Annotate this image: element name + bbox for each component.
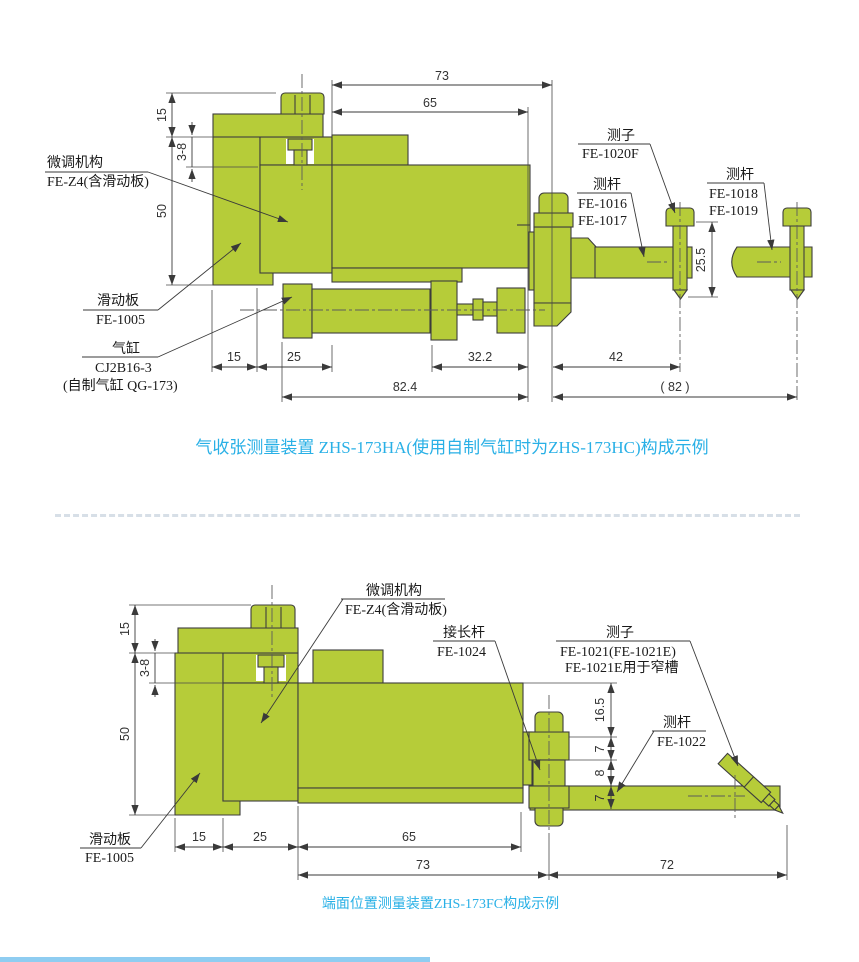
fine-adjust-block-part xyxy=(260,165,332,273)
dim-72: 72 xyxy=(660,858,674,872)
section-separator-dashed-line xyxy=(55,514,800,517)
body-step-part xyxy=(332,135,408,165)
cylinder-right-cap-part xyxy=(431,281,457,340)
body-step-part xyxy=(313,650,383,683)
main-body-part xyxy=(332,165,530,268)
label-rod-a-title: 测杆 xyxy=(593,177,621,193)
dim-82: ( 82 ) xyxy=(660,380,689,394)
dim-25-5: 25.5 xyxy=(694,248,708,272)
label-cylinder-part: CJ2B16-3 xyxy=(95,361,152,376)
label-stylus-title: 测子 xyxy=(607,128,635,144)
fine-adjust-block-part xyxy=(223,683,298,801)
diagram-air-gauge-zhs-173ha: 73 65 15 3-8 50 25.5 15 25 32.2 82.4 42 … xyxy=(45,69,812,402)
dim-73: 73 xyxy=(435,69,449,83)
bolt-nut-part xyxy=(258,655,284,667)
dim-25: 25 xyxy=(253,830,267,844)
elbow-part xyxy=(571,238,598,278)
label-fine-adjust-part: FE-Z4(含滑动板) xyxy=(345,601,447,618)
dim-73: 73 xyxy=(416,858,430,872)
dim-42: 42 xyxy=(609,350,623,364)
post-foot-part xyxy=(534,303,571,326)
body-strip-part xyxy=(332,268,462,282)
label-cylinder-title: 气缸 xyxy=(112,340,140,357)
bolt-shaft-part xyxy=(264,667,278,683)
label-fine-adjust-title: 微调机构 xyxy=(366,583,422,599)
dim-15-left: 15 xyxy=(155,108,169,122)
label-stylus-title: 测子 xyxy=(606,625,634,641)
label-rod-b-part2: FE-1019 xyxy=(709,204,758,219)
label-rod-b-part1: FE-1018 xyxy=(709,187,758,202)
stylus-tip-part xyxy=(674,290,687,299)
body-strip-part xyxy=(298,788,523,803)
label-rod-b-title: 测杆 xyxy=(726,167,754,183)
label-rod-a-part1: FE-1016 xyxy=(578,197,627,212)
label-rod-title: 测杆 xyxy=(663,715,691,731)
clamp-bolt-head-part xyxy=(281,93,324,114)
label-cylinder-note: (自制气缸 QG-173) xyxy=(63,377,178,394)
dim-65: 65 xyxy=(402,830,416,844)
label-slide-plate-part: FE-1005 xyxy=(96,313,145,328)
bolt-shaft-part xyxy=(294,150,307,165)
cylinder-left-cap-part xyxy=(283,284,312,338)
label-stylus-part: FE-1021(FE-1021E) xyxy=(560,645,676,660)
caption-zhs-173fc: 端面位置测量装置ZHS-173FC构成示例 xyxy=(22,893,859,913)
label-stylus-note: FE-1021E用于窄槽 xyxy=(565,659,679,676)
technical-drawing-page: 73 65 15 3-8 50 25.5 15 25 32.2 82.4 42 … xyxy=(0,0,859,962)
dim-65: 65 xyxy=(423,96,437,110)
label-fine-adjust-part: FE-Z4(含滑动板) xyxy=(47,173,149,190)
rod-collar-part xyxy=(473,299,483,320)
dim-16-5: 16.5 xyxy=(593,698,607,722)
bottom-blue-bar xyxy=(0,957,430,962)
top-plate-part xyxy=(213,114,323,137)
post-bolt-head-part xyxy=(539,193,568,213)
label-extension-rod-title: 接长杆 xyxy=(443,624,485,641)
label-slide-plate-part: FE-1005 xyxy=(85,851,134,866)
label-slide-plate-title: 滑动板 xyxy=(89,831,131,848)
rod-b-bolt-tip-part xyxy=(791,290,804,299)
caption-zhs-173ha: 气收张测量装置 ZHS-173HA(使用自制气缸时为ZHS-173HC)构成示例 xyxy=(45,433,859,458)
coupler-block-part xyxy=(497,288,525,333)
dim-15-left: 15 xyxy=(118,622,132,636)
dim-7b: 7 xyxy=(593,794,607,801)
top-plate-part xyxy=(178,628,298,653)
dim-15: 15 xyxy=(192,830,206,844)
label-rod-a-part2: FE-1017 xyxy=(578,214,627,229)
dim-32-2: 32.2 xyxy=(468,350,492,364)
piston-rod-part xyxy=(457,304,473,315)
label-fine-adjust-title: 微调机构 xyxy=(47,155,103,171)
label-extension-rod-part: FE-1024 xyxy=(437,645,486,660)
dim-3-8: 3-8 xyxy=(175,143,189,161)
dim-8: 8 xyxy=(593,769,607,776)
label-rod-part: FE-1022 xyxy=(657,735,706,750)
cylinder-tube-part xyxy=(312,289,430,333)
label-stylus-part: FE-1020F xyxy=(582,147,639,162)
bolt-nut-part xyxy=(288,139,312,150)
clamp-bolt-head-part xyxy=(251,605,295,628)
drawing-canvas: 73 65 15 3-8 50 25.5 15 25 32.2 82.4 42 … xyxy=(0,0,859,962)
dim-3-8: 3-8 xyxy=(138,659,152,677)
label-slide-plate-title: 滑动板 xyxy=(97,292,139,309)
dim-50: 50 xyxy=(118,727,132,741)
diagram-face-position-zhs-173fc: 15 3-8 50 16.5 7 8 7 15 25 65 73 72 xyxy=(80,583,788,880)
post-nut-part xyxy=(534,213,573,227)
rod-neck-part xyxy=(483,302,497,316)
dim-50: 50 xyxy=(155,204,169,218)
post-part xyxy=(534,227,571,303)
dim-15: 15 xyxy=(227,350,241,364)
dim-82-4: 82.4 xyxy=(393,380,417,394)
dim-25: 25 xyxy=(287,350,301,364)
dim-7a: 7 xyxy=(593,745,607,752)
main-body-part xyxy=(298,683,523,788)
